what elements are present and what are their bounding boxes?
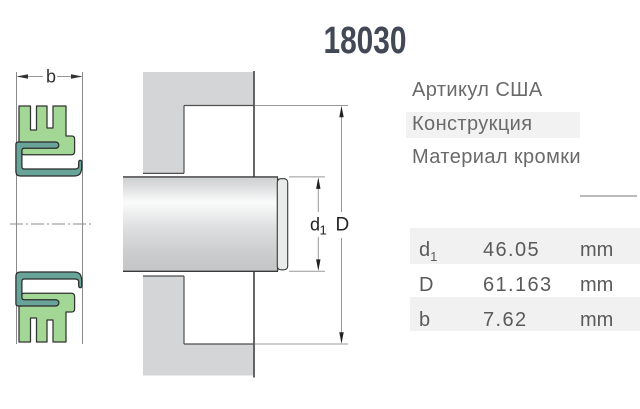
svg-text:D: D: [336, 215, 350, 236]
svg-text:d: d: [310, 215, 320, 235]
svg-text:1: 1: [320, 223, 327, 238]
svg-text:b: b: [46, 67, 56, 87]
